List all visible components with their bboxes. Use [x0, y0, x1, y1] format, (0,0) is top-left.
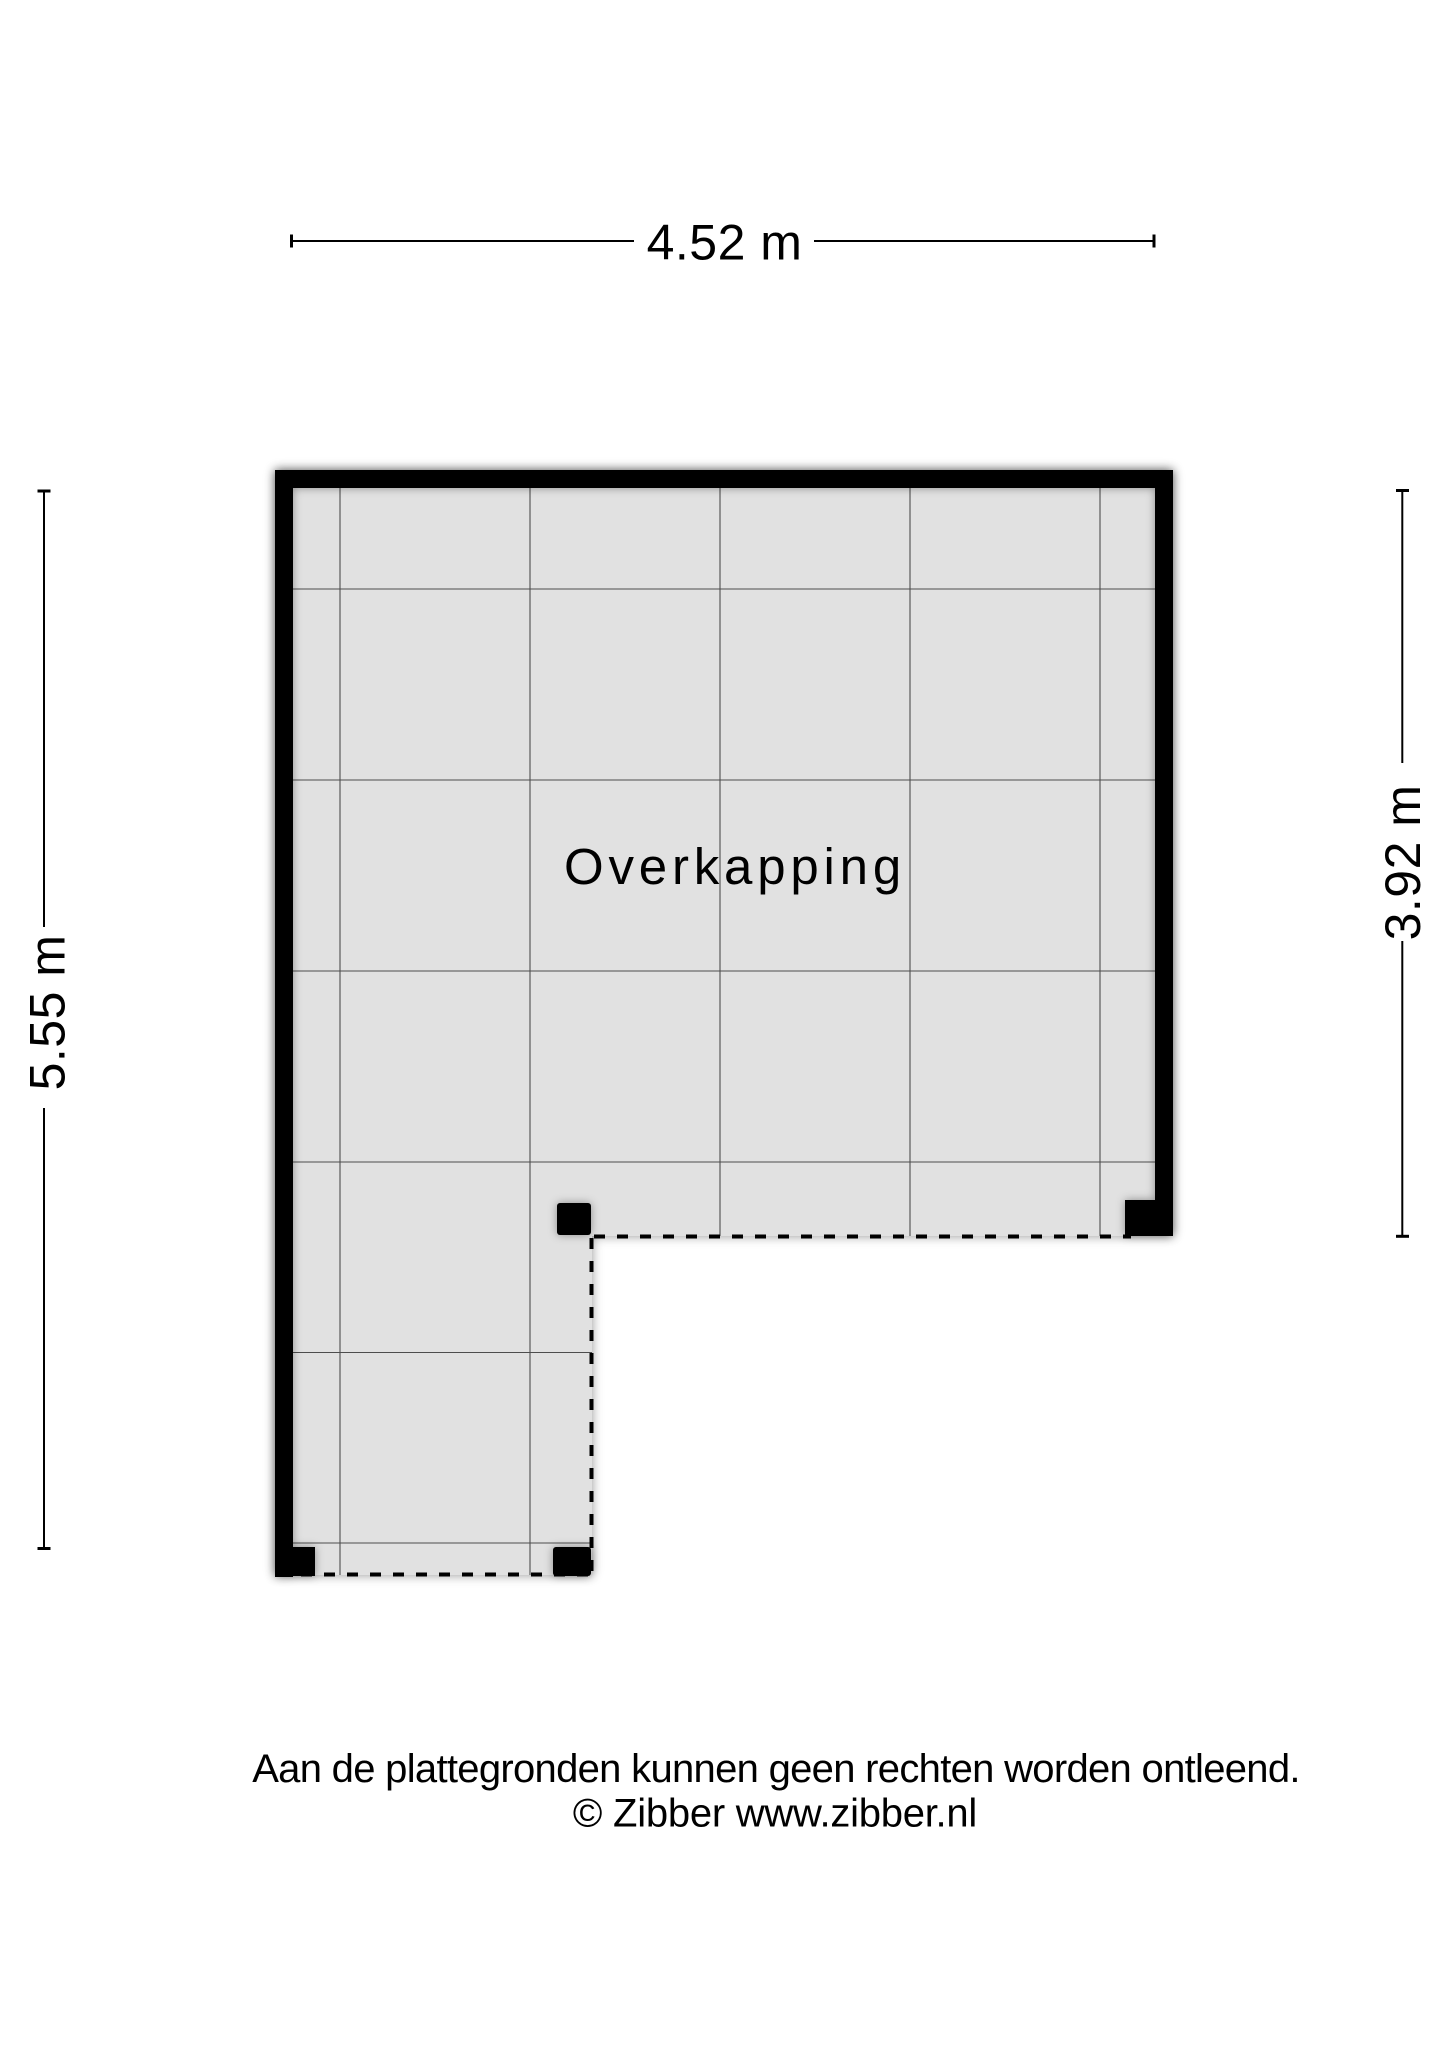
- svg-text:© Zibber www.zibber.nl: © Zibber www.zibber.nl: [573, 1792, 977, 1836]
- svg-text:Overkapping: Overkapping: [564, 838, 906, 895]
- svg-text:Aan de plattegronden kunnen ge: Aan de plattegronden kunnen geen rechten…: [252, 1747, 1300, 1791]
- svg-text:5.55 m: 5.55 m: [19, 935, 75, 1091]
- svg-text:3.92 m: 3.92 m: [1375, 785, 1431, 941]
- svg-text:4.52 m: 4.52 m: [647, 214, 803, 270]
